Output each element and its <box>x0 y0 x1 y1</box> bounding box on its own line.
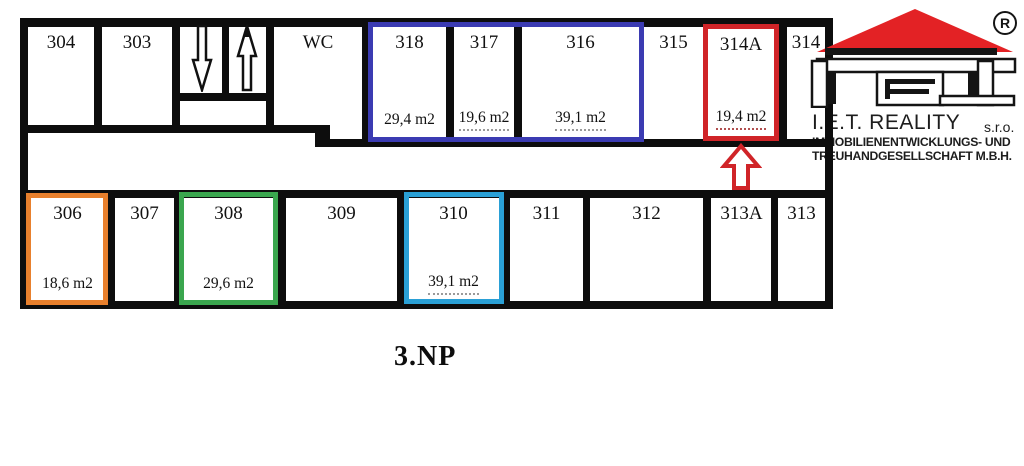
wall <box>222 18 229 101</box>
wall <box>108 190 115 309</box>
wall <box>583 190 590 309</box>
room-313A: 313A <box>712 198 771 301</box>
highlight-box-316-318 <box>368 22 644 142</box>
room-wc: WC <box>274 27 362 135</box>
room-number: 312 <box>590 204 703 225</box>
logo-subtitle-line2: TREUHANDGESELLSCHAFT M.B.H. <box>812 149 1012 163</box>
floor-plan: I.E.T. REALITY s.r.o. IMMOBILIENENTWICKL… <box>0 0 1024 466</box>
room-311: 311 <box>510 198 583 301</box>
stairs-down-arrow-icon <box>189 24 215 92</box>
logo-company-name: I.E.T. REALITY <box>812 111 960 135</box>
logo-subtitle-line1: IMMOBILIENENTWICKLUNGS- UND <box>812 135 1010 149</box>
room-312: 312 <box>590 198 703 301</box>
highlight-box-306 <box>26 193 108 305</box>
room-number: 313 <box>778 204 825 225</box>
room-number: WC <box>274 33 362 54</box>
logo-house-graphic: R <box>805 2 1019 108</box>
room-313: 313 <box>778 198 825 301</box>
room-number: 313A <box>712 204 771 225</box>
logo-company-suffix: s.r.o. <box>984 119 1014 135</box>
highlight-box-310 <box>404 192 504 304</box>
selected-unit-arrow-icon <box>720 143 762 191</box>
room-number: 307 <box>115 204 174 225</box>
floor-label: 3.NP <box>394 341 484 373</box>
wall <box>779 18 787 147</box>
room-307: 307 <box>115 198 174 301</box>
room-number: 303 <box>102 33 172 54</box>
wall <box>503 190 510 309</box>
room-309: 309 <box>286 198 397 301</box>
room-number: 315 <box>644 33 703 54</box>
stairs-up-arrow-icon <box>234 24 260 92</box>
highlight-box-314A <box>703 24 779 141</box>
wall <box>266 18 274 133</box>
wall <box>172 18 180 133</box>
room-303: 303 <box>102 27 172 125</box>
room-304: 304 <box>28 27 94 125</box>
logo-roof <box>817 9 1013 52</box>
room-number: 309 <box>286 204 397 225</box>
stairwell-landing <box>180 101 266 125</box>
room-number: 304 <box>28 33 94 54</box>
wall <box>703 190 711 309</box>
room-number: 311 <box>510 204 583 225</box>
highlight-box-308 <box>179 192 278 305</box>
wall <box>278 190 286 309</box>
registered-trademark-letter: R <box>1000 15 1010 31</box>
wall <box>94 18 102 133</box>
room-315: 315 <box>644 27 703 139</box>
wall <box>771 190 778 309</box>
